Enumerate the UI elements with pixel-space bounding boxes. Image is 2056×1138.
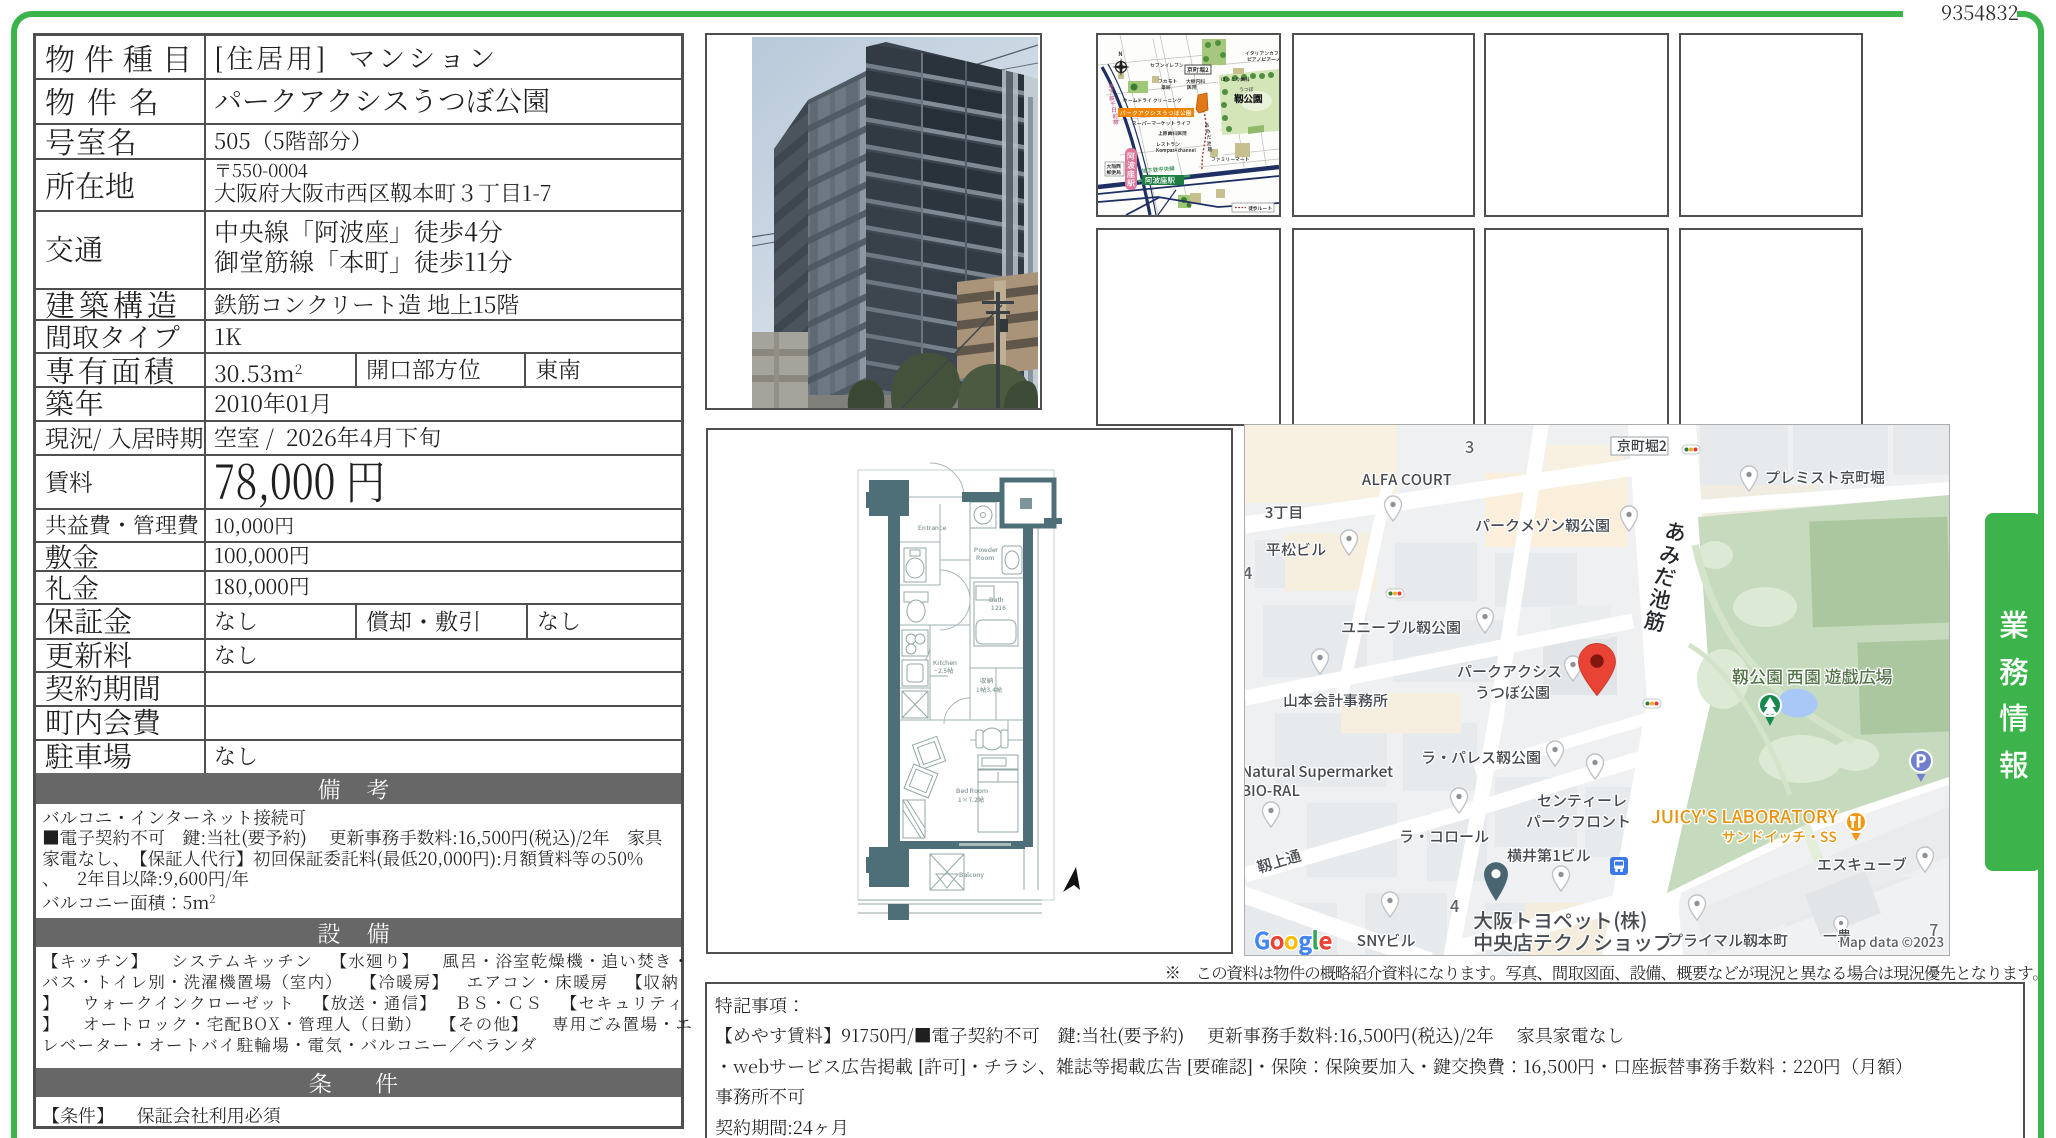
svg-text:靱公園 西園 遊戯広場: 靱公園 西園 遊戯広場 [1732, 663, 1893, 688]
svg-text:ユニーブル靱公園: ユニーブル靱公園 [1341, 617, 1461, 638]
svg-text:靱公園: 靱公園 [1234, 91, 1263, 105]
svg-text:医院: 医院 [1187, 84, 1197, 91]
svg-text:山本会計事務所: 山本会計事務所 [1283, 690, 1388, 711]
svg-text:線: 線 [1113, 118, 1119, 126]
svg-text:パークメゾン靱公園: パークメゾン靱公園 [1475, 515, 1610, 536]
svg-text:Room: Room [976, 552, 994, 562]
svg-text:パークアクシス: パークアクシス [1457, 661, 1562, 682]
svg-text:京町堀2: 京町堀2 [1617, 436, 1667, 456]
svg-text:京町堀2: 京町堀2 [1187, 65, 1209, 74]
svg-text:Map data ©2023: Map data ©2023 [1839, 931, 1944, 951]
svg-text:筋: 筋 [1206, 146, 1212, 153]
svg-text:P: P [1915, 747, 1927, 772]
svg-text:ファミリーマート: ファミリーマート [1211, 156, 1250, 163]
svg-text:Kompas+channel: Kompas+channel [1156, 147, 1196, 154]
svg-text:駅: 駅 [1126, 178, 1135, 189]
svg-text:平松ビル: 平松ビル [1266, 539, 1326, 560]
svg-text:Natural Supermarket: Natural Supermarket [1245, 761, 1394, 782]
svg-text:~2.5帖: ~2.5帖 [934, 665, 954, 675]
svg-text:4: 4 [1450, 893, 1460, 917]
svg-text:うつぼ公園: うつぼ公園 [1475, 682, 1550, 703]
svg-text:パークフロント: パークフロント [1526, 811, 1631, 832]
svg-text:BIO-RAL: BIO-RAL [1245, 780, 1300, 801]
svg-text:横井第1ビル: 横井第1ビル [1507, 845, 1591, 866]
svg-text:郵便局: 郵便局 [1107, 169, 1122, 176]
svg-text:サンドイッチ・SS: サンドイッチ・SS [1722, 827, 1837, 847]
svg-text:セブンイレブン: セブンイレブン [1150, 62, 1184, 69]
svg-text:阿波座駅: 阿波座駅 [1145, 175, 1175, 186]
svg-text:パークアクシスうつぼ公園: パークアクシスうつぼ公園 [1120, 109, 1192, 117]
svg-text:3丁目: 3丁目 [1265, 502, 1304, 523]
svg-text:SNYビル: SNYビル [1357, 930, 1415, 951]
svg-text:1×7.2帖: 1×7.2帖 [958, 794, 985, 804]
svg-text:ピアノピアーノ: ピアノピアーノ [1247, 56, 1279, 63]
svg-text:プレミスト京町堀: プレミスト京町堀 [1765, 467, 1885, 488]
svg-text:センティーレ: センティーレ [1537, 790, 1627, 811]
svg-text:Entrance: Entrance [918, 522, 946, 532]
svg-text:スーパーマーケット ライフ: スーパーマーケット ライフ [1132, 120, 1191, 127]
svg-text:Balcony: Balcony [959, 869, 984, 879]
svg-text:N: N [1119, 49, 1123, 58]
svg-text:エスキューブ: エスキューブ [1817, 854, 1907, 875]
svg-text:ホームドライ クリーニング: ホームドライ クリーニング [1123, 97, 1182, 104]
svg-text:薬局: 薬局 [1161, 84, 1171, 91]
svg-text:上原歯科医院: 上原歯科医院 [1158, 130, 1187, 137]
svg-text:Google: Google [1254, 922, 1333, 955]
svg-text:ほっとり歯科: ほっとり歯科 [1221, 76, 1250, 83]
svg-text:プライマル靱本町: プライマル靱本町 [1668, 930, 1789, 951]
svg-text:3: 3 [1465, 434, 1474, 458]
svg-text:1216: 1216 [991, 602, 1006, 612]
svg-text:徒歩ルート: 徒歩ルート [1248, 205, 1272, 212]
svg-text:ラ・コロール: ラ・コロール [1399, 826, 1489, 847]
svg-text:ALFA COURT: ALFA COURT [1361, 469, 1452, 490]
svg-text:1帖3.4帖: 1帖3.4帖 [976, 684, 1003, 694]
svg-text:4: 4 [1245, 560, 1253, 584]
svg-text:JUICY'S LABORATORY: JUICY'S LABORATORY [1651, 803, 1839, 829]
svg-text:ラ・パレス靱公園: ラ・パレス靱公園 [1421, 747, 1541, 768]
svg-text:中央店テクノショップ: 中央店テクノショップ [1473, 927, 1673, 955]
